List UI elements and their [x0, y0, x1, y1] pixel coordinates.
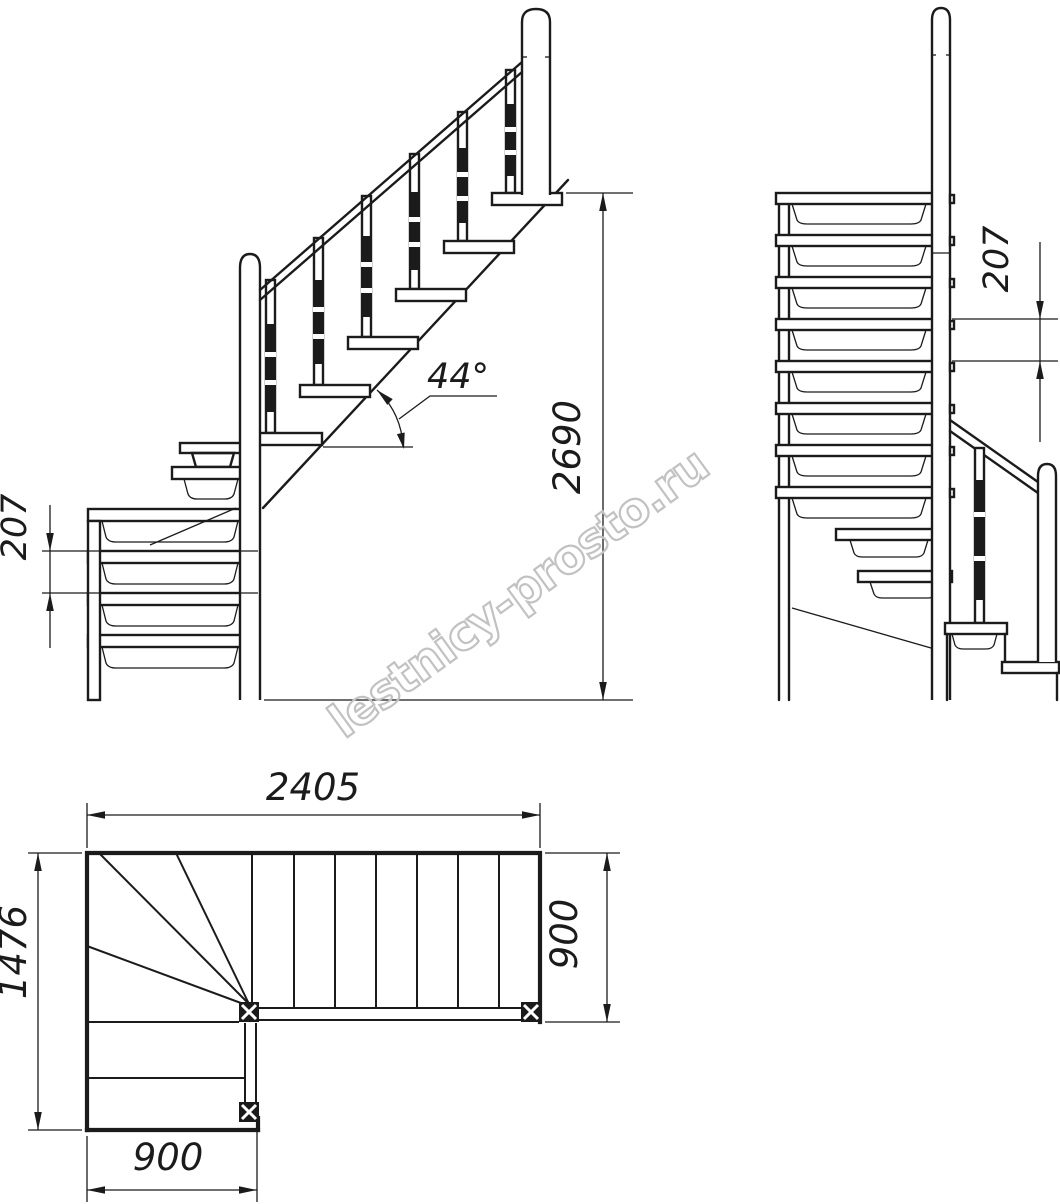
- newel-post-tall: [932, 8, 954, 700]
- plan-newel-corner: [239, 1002, 259, 1022]
- dim-flight-width-right: 900: [543, 853, 620, 1022]
- handrail-side: [260, 62, 522, 300]
- blueprint-canvas: 44° 207 2690: [0, 0, 1060, 1204]
- winder-steps-side: [88, 443, 244, 700]
- dim-flight-width-bottom: 900: [87, 1128, 257, 1202]
- front-elevation-view: 207: [776, 8, 1059, 700]
- treads-front: [776, 193, 952, 598]
- plan-winder-lines: [87, 853, 249, 1006]
- plan-railings: [245, 1008, 521, 1102]
- dim-riser-front: 207: [952, 226, 1058, 442]
- riser-front-label: 207: [977, 226, 1017, 293]
- flight-width-bottom-label: 900: [133, 1136, 204, 1179]
- baluster-front: [974, 448, 985, 623]
- dim-plan-length: 2405: [87, 766, 540, 848]
- angle-annotation: 44°: [323, 357, 497, 449]
- dim-plan-depth: 1476: [0, 853, 82, 1130]
- plan-newel-right: [521, 1002, 541, 1022]
- plan-view: 2405 1476 900 900: [0, 766, 620, 1202]
- plan-length-label: 2405: [266, 766, 360, 809]
- plan-outline: [87, 853, 540, 1130]
- plan-depth-label: 1476: [0, 905, 35, 999]
- watermark-text: lestnicy-prosto.ru: [319, 438, 719, 750]
- treads-side: [252, 193, 562, 445]
- front-leg: [88, 521, 100, 700]
- newel-post-top: [522, 9, 550, 195]
- riser-side-label: 207: [0, 494, 35, 561]
- plan-newel-bottom: [239, 1102, 259, 1122]
- plan-treads: [252, 853, 499, 1008]
- handrail-front: [950, 420, 1038, 493]
- newel-post-bottom-right: [1038, 464, 1056, 662]
- angle-label: 44°: [427, 357, 489, 397]
- newel-post-middle: [240, 254, 260, 700]
- total-rise-label: 2690: [546, 400, 589, 494]
- flight-width-right-label: 900: [543, 899, 586, 970]
- stair-blueprint: 44° 207 2690: [0, 0, 1060, 1204]
